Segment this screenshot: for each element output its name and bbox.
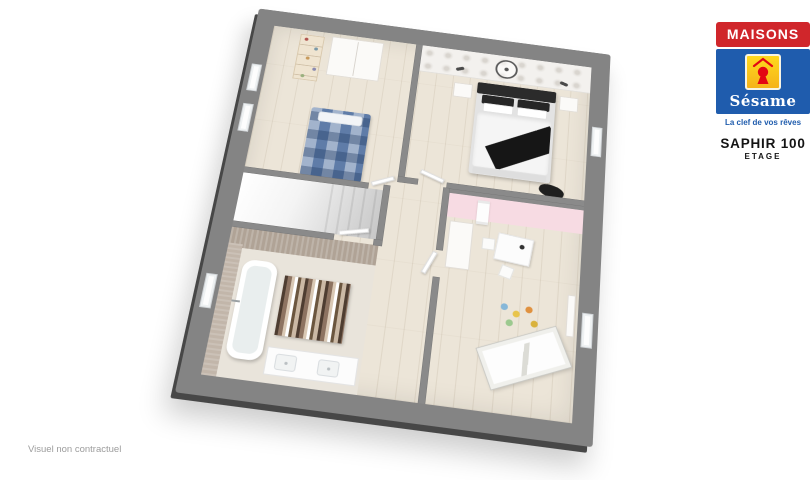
pillow [317,111,363,127]
logo-sesame-wordmark: Sésame [716,92,810,110]
wardrobe-door-split [352,42,359,76]
door-leaf [420,169,445,183]
wardrobe [326,36,384,81]
kids-chair [498,264,515,280]
model-title-block: SAPHIR 100 ETAGE [690,136,811,161]
shelf-decor [304,37,308,41]
window [591,127,603,158]
keyhole-house-icon [750,57,776,87]
sink [273,353,297,372]
duvet [472,112,551,176]
toy-ball [505,319,513,327]
model-name: SAPHIR 100 [690,136,811,151]
logo-maisons-banner: MAISONS [716,22,810,47]
bookshelf [292,34,325,82]
logo-keyhole-emblem [745,54,781,90]
kids-chair [481,237,495,250]
door-leaf [421,251,438,274]
crib-blanket [491,337,559,382]
window [246,63,262,91]
toy-ball [525,306,533,314]
window [580,313,593,349]
nightstand [453,82,473,99]
crib [477,327,571,389]
door-panel [476,200,490,225]
throw-blanket [485,126,551,170]
door-leaf [371,176,395,186]
toy-ball [512,310,520,318]
wall [398,45,423,183]
kids-table [493,232,534,267]
floorplan-slab [175,9,611,448]
disclaimer-text: Visuel non contractuel [28,444,121,455]
logo-tagline: La clef de vos rêves [716,118,810,127]
striped-accent-wall [274,275,351,343]
bed-double [468,82,556,183]
floorplan-render [192,0,631,452]
wardrobe [445,220,474,270]
bed-blue-patchwork [299,107,371,183]
nightstand [559,96,579,113]
maisons-sesame-logo: MAISONS Sésame La clef de vos rêves [716,22,810,127]
toy-ball [530,320,538,328]
radiator [565,295,576,338]
sink [316,359,340,378]
wall [373,239,382,245]
wall [398,177,418,185]
logo-blue-panel: Sésame [716,49,810,114]
model-level: ETAGE [690,152,811,161]
floorplan-interior [201,26,592,424]
window [237,103,254,132]
toy-ball [500,303,508,311]
child-bedroom [425,188,584,423]
